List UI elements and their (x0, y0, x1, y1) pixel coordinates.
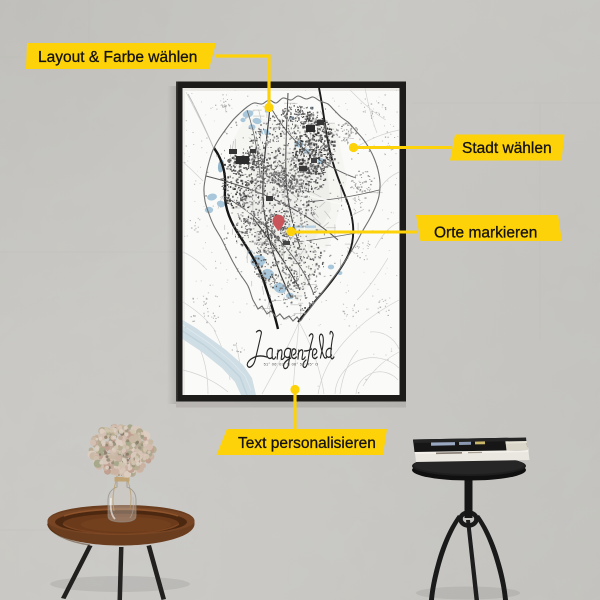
svg-text:Orte markieren: Orte markieren (434, 225, 537, 242)
svg-text:51° 06' 03" N 06° 56' 45" O: 51° 06' 03" N 06° 56' 45" O (264, 362, 319, 367)
svg-text:Stadt wählen: Stadt wählen (462, 140, 552, 157)
svg-text:Text personalisieren: Text personalisieren (238, 435, 376, 452)
svg-text:Layout & Farbe wählen: Layout & Farbe wählen (38, 49, 197, 66)
